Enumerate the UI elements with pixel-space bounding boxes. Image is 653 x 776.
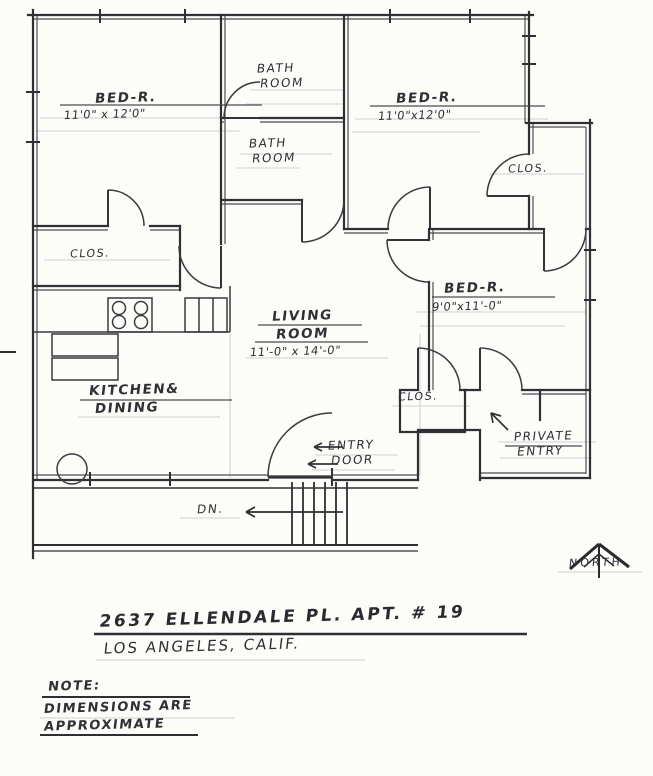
room-label-line: DINING bbox=[94, 398, 179, 418]
room-label-bedroom-top-left: BED-R. bbox=[94, 89, 157, 107]
note-heading: NOTE: bbox=[47, 678, 101, 696]
label-line: ENTRY bbox=[327, 437, 376, 453]
room-label-line: BATH bbox=[256, 60, 306, 76]
stove-burner bbox=[113, 316, 126, 329]
stove-burner bbox=[135, 302, 148, 315]
room-label-line: BATH bbox=[248, 135, 298, 151]
stairs bbox=[292, 482, 347, 546]
room-label-line: KITCHEN& bbox=[88, 380, 181, 401]
stove-burner bbox=[135, 316, 148, 329]
room-dims-bedroom-top-left: 11'0" x 12'0" bbox=[63, 106, 146, 123]
room-label-closet-right: CLOS. bbox=[507, 161, 549, 176]
room-label-bathroom-mid: BATH ROOM bbox=[246, 135, 298, 166]
down-arrow bbox=[246, 507, 343, 517]
private-entry-arrow bbox=[491, 413, 508, 430]
room-label-kitchen: KITCHEN& DINING bbox=[86, 380, 181, 419]
floor-plan-page: BED-R. 11'0" x 12'0" BATH ROOM BED-R. 11… bbox=[0, 0, 653, 776]
room-label-closet-left: CLOS. bbox=[69, 246, 111, 261]
counter-cabinet bbox=[52, 358, 118, 380]
sink bbox=[185, 298, 227, 332]
room-label-bedroom-top-right: BED-R. bbox=[395, 89, 458, 107]
label-stairs-down: DN. bbox=[196, 502, 224, 518]
room-label-bedroom-right: BED-R. bbox=[443, 279, 506, 297]
room-label-line: ROOM bbox=[251, 150, 296, 166]
counter-cabinet bbox=[52, 334, 118, 356]
label-private-entry: PRIVATE ENTRY bbox=[511, 428, 574, 460]
note-line-2: APPROXIMATE bbox=[43, 716, 166, 735]
label-line: PRIVATE bbox=[513, 428, 574, 445]
walkway bbox=[33, 482, 418, 551]
room-label-bathroom-top: BATH ROOM bbox=[254, 60, 306, 91]
room-dims-living: 11'-0" x 14'-0" bbox=[249, 343, 342, 360]
room-dims-bedroom-top-right: 11'0"x12'0" bbox=[377, 107, 452, 123]
stove-burner bbox=[113, 302, 126, 315]
label-line: DOOR bbox=[330, 452, 374, 468]
label-entry-door: ENTRY DOOR bbox=[325, 437, 376, 468]
room-label-line: ROOM bbox=[259, 75, 304, 91]
room-label-living-1: LIVING bbox=[271, 307, 334, 325]
label-north: NORTH bbox=[568, 555, 623, 570]
room-dims-bedroom-right: 9'0"x11'-0" bbox=[431, 298, 503, 314]
room-label-living-2: ROOM bbox=[275, 325, 330, 343]
room-label-closet-mid: CLOS. bbox=[397, 389, 439, 404]
label-line: ENTRY bbox=[516, 443, 572, 459]
